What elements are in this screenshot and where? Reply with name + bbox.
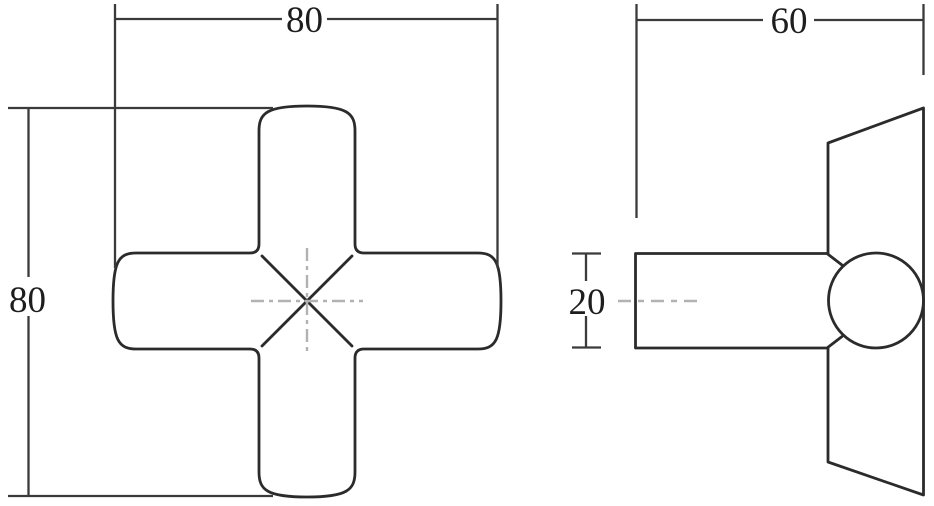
dimension-labels: 80 80 60 20 [9, 0, 808, 323]
dim-side-width-label: 60 [771, 1, 808, 42]
side-lobe-profile [828, 108, 924, 495]
dim-front-width-label: 80 [286, 0, 323, 41]
dim-front-height-label: 80 [9, 280, 46, 321]
side-view [636, 108, 924, 495]
dim-side-stem-label: 20 [569, 282, 606, 323]
dim-front-height [8, 108, 273, 496]
drawing-svg: 80 80 60 20 [0, 0, 934, 506]
side-boss-circle [829, 253, 924, 348]
side-stem-outline [636, 254, 843, 349]
technical-drawing: 80 80 60 20 [0, 0, 934, 506]
dim-front-width [115, 4, 498, 268]
